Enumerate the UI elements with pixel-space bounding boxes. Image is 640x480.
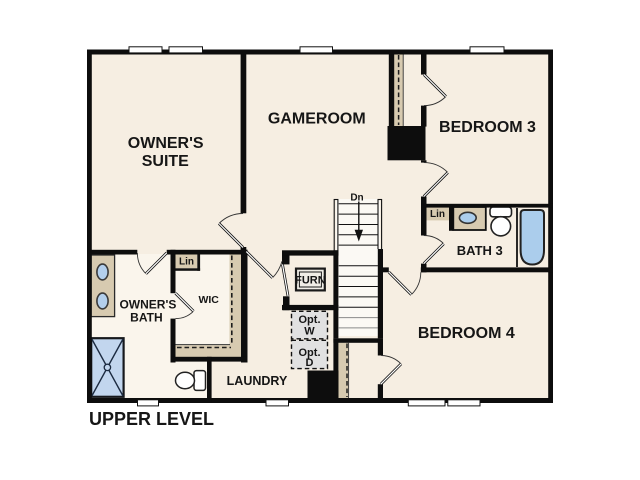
- svg-text:FURN: FURN: [295, 275, 326, 287]
- svg-text:W: W: [304, 325, 315, 337]
- svg-text:GAMEROOM: GAMEROOM: [268, 110, 366, 127]
- svg-text:Dn: Dn: [350, 193, 363, 204]
- svg-text:BEDROOM 4: BEDROOM 4: [418, 325, 515, 342]
- svg-text:LAUNDRY: LAUNDRY: [227, 374, 288, 388]
- svg-text:SUITE: SUITE: [142, 153, 189, 170]
- svg-text:WIC: WIC: [198, 294, 219, 306]
- svg-text:BEDROOM 3: BEDROOM 3: [439, 119, 536, 136]
- svg-text:BATH: BATH: [130, 310, 162, 324]
- svg-text:Lin: Lin: [430, 209, 445, 220]
- svg-text:Opt.: Opt.: [299, 314, 321, 326]
- svg-text:Lin: Lin: [179, 257, 194, 268]
- svg-text:OWNER'S: OWNER'S: [128, 135, 204, 152]
- svg-text:D: D: [306, 357, 314, 369]
- svg-text:UPPER LEVEL: UPPER LEVEL: [89, 409, 214, 429]
- svg-text:BATH 3: BATH 3: [457, 243, 503, 258]
